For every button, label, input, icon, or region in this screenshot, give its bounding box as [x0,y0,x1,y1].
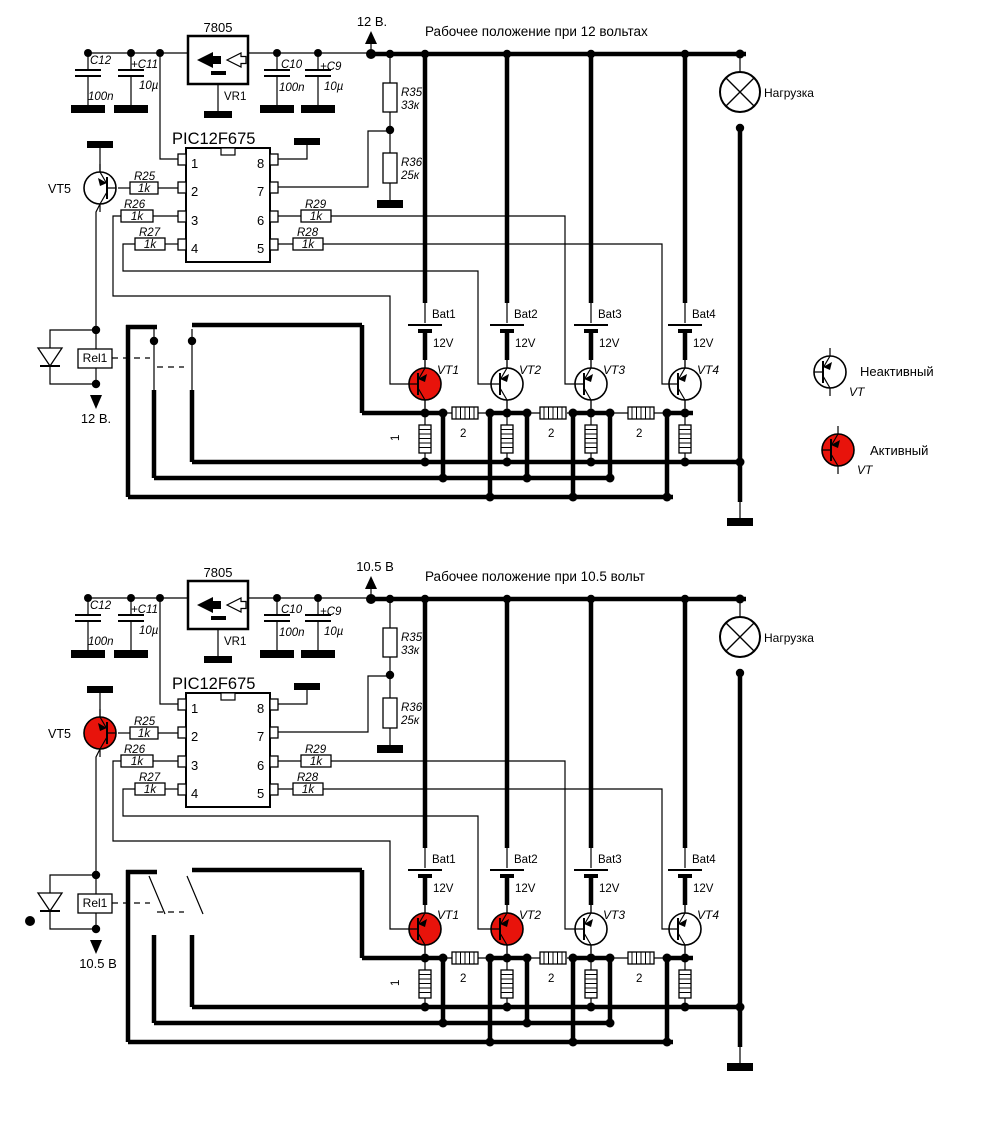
legend-inactive-ref: VT [849,385,866,399]
vt5-transistor [84,164,116,212]
panel-10v5-supply-label: 10.5 В [356,559,394,574]
legend-active-label: Активный [870,443,928,458]
panel-10v5-relay-voltage: 10.5 В [79,956,117,971]
panel-12v-relay-voltage: 12 В. [81,411,111,426]
panel-12v-supply-label: 12 В. [357,14,387,29]
vt5-transistor [84,709,116,757]
relay-contacts-closed [150,329,196,390]
relay-contacts-open [149,876,203,914]
panel-10v5-title: Рабочее положение при 10.5 вольт [425,569,645,584]
panel-12v-core [38,20,814,526]
legend: Неактивный VT Активный VT [814,348,934,477]
legend-inactive-transistor-icon [814,348,846,396]
schematic-page: C12 100n +C11 10µ 7805 VR1 C10 100n +C9 … [0,0,1004,1122]
legend-active-ref: VT [857,463,874,477]
legend-inactive-label: Неактивный [860,364,934,379]
panel-12v-title: Рабочее положение при 12 вольтах [425,24,648,39]
legend-active-transistor-icon [822,426,854,474]
battery-balancer-schematic: C12 100n +C11 10µ 7805 VR1 C10 100n +C9 … [0,0,1004,1122]
aux-dot [25,916,35,926]
panel-10v5-core [38,565,814,1071]
